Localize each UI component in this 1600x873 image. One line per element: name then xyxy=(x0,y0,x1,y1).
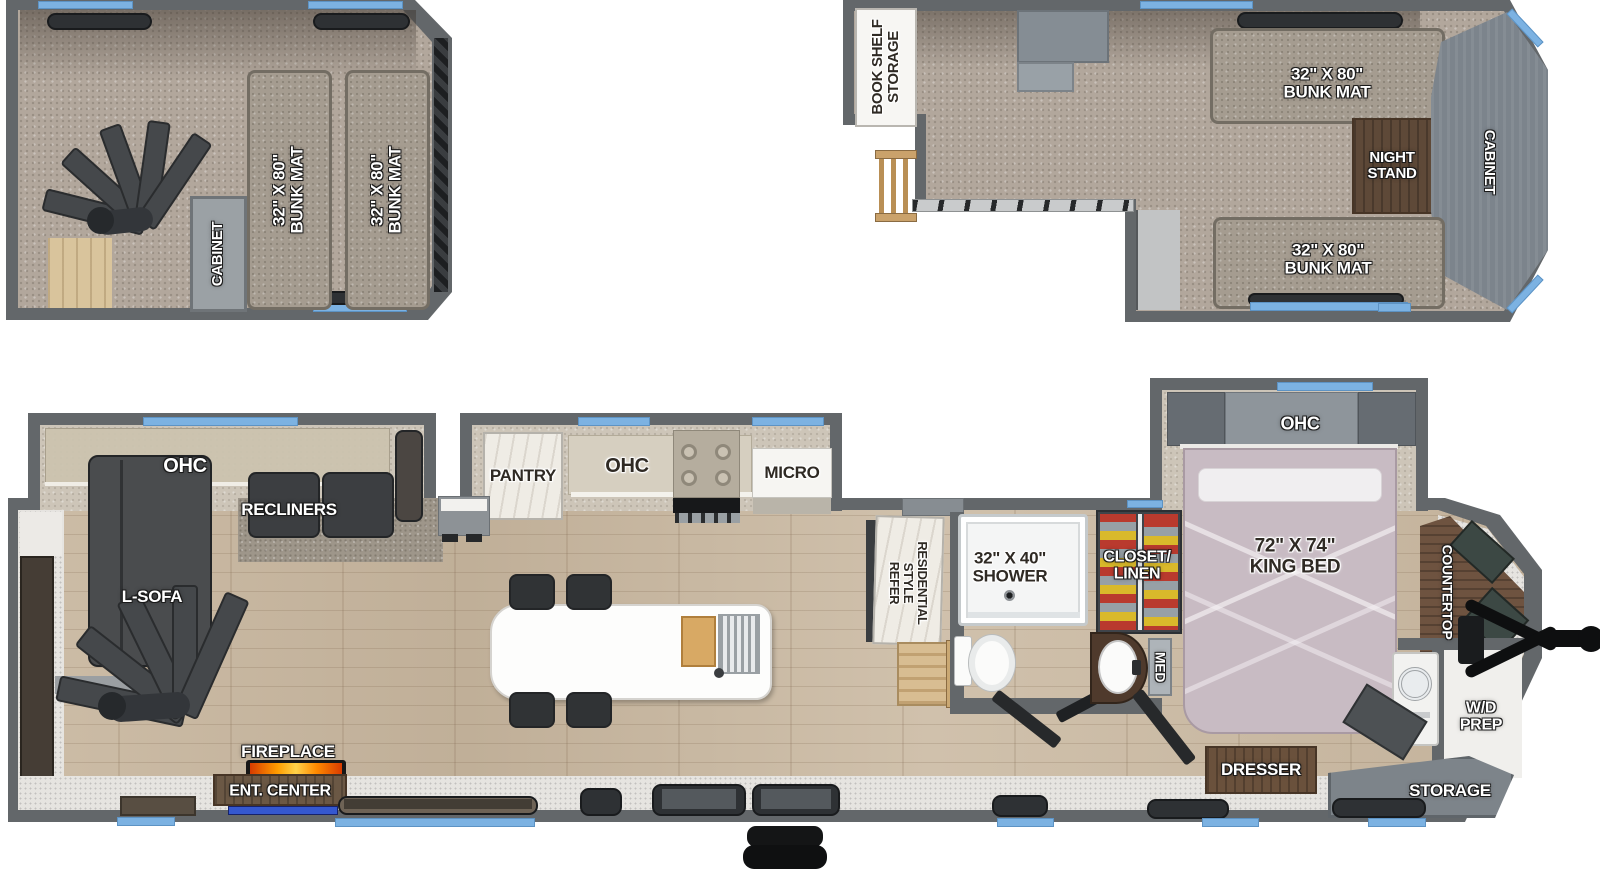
island-sink xyxy=(718,614,760,674)
loft-right-railing xyxy=(912,199,1134,212)
dresser-label: DRESSER xyxy=(1221,761,1301,779)
bottom-window-1 xyxy=(117,817,175,826)
loft-left-ladder-edge xyxy=(434,38,448,292)
sill-entry-right xyxy=(992,795,1048,817)
kitchen-slideout-window-2 xyxy=(752,417,824,426)
stove-vent xyxy=(675,513,740,523)
entry-mat-2-glass xyxy=(761,789,831,809)
living-corner-unit xyxy=(395,430,423,522)
bed-pillows xyxy=(1198,468,1382,502)
loft-left-cabinet-label: CABINET xyxy=(210,222,226,287)
l-sofa-label: L-SOFA xyxy=(122,588,183,606)
ent-center-led xyxy=(228,806,338,815)
loft-left-window-top-2 xyxy=(308,1,403,9)
island-chair-2 xyxy=(566,574,612,610)
living-slideout-window xyxy=(143,417,298,426)
kitchen-ohc-label: OHC xyxy=(605,456,649,478)
mid-cabinet-mark-2 xyxy=(466,534,482,542)
loft-right-window-top xyxy=(1140,1,1253,9)
loft-stairs-lower xyxy=(897,642,949,706)
hitch-mount xyxy=(1458,616,1484,664)
burner-3 xyxy=(681,470,697,486)
entry-step-2 xyxy=(743,845,827,869)
sill-door-left xyxy=(580,788,622,816)
fireplace-label: FIREPLACE xyxy=(241,743,335,761)
loft-left-bunk-mat-2-label: 32" X 80" BUNK MAT xyxy=(369,147,406,234)
stove xyxy=(673,430,740,498)
mid-cabinet-top xyxy=(441,499,487,511)
loft-right-bunk-mat-bottom-label: 32" X 80" BUNK MAT xyxy=(1285,242,1372,279)
closet-label: CLOSET/ LINEN xyxy=(1103,549,1170,584)
hitch-coupler xyxy=(1578,626,1600,652)
cutting-board xyxy=(681,616,716,667)
vanity-faucet xyxy=(1132,660,1141,675)
entry-mat-1-glass xyxy=(662,789,736,809)
micro-drawer xyxy=(753,498,831,514)
hull-top-window xyxy=(1127,500,1163,508)
bedroom-ohc-end-left xyxy=(1167,392,1225,446)
burner-4 xyxy=(715,470,731,486)
hearth-tray xyxy=(120,796,196,816)
floorplan: 32" X 80" BUNK MAT 32" X 80" BUNK MAT CA… xyxy=(0,0,1600,873)
bedroom-ohc-end-right xyxy=(1358,392,1416,446)
living-ohc-label: OHC xyxy=(163,456,207,478)
loft-left-overhead-shelf-2 xyxy=(313,13,410,30)
sill-bedroom-1 xyxy=(1147,799,1229,819)
ent-center-label: ENT. CENTER xyxy=(229,782,331,799)
loft-left-bunk-mat-1-label: 32" X 80" BUNK MAT xyxy=(271,147,308,234)
island-chair-4 xyxy=(566,692,612,728)
burner-1 xyxy=(681,444,697,460)
loft-left-window-top-1 xyxy=(38,1,133,9)
loft-right-overhead-box-2 xyxy=(1017,62,1074,92)
loft-left-spiral-stairs xyxy=(35,185,205,320)
king-bed-label: 72" X 74" KING BED xyxy=(1250,536,1341,577)
sofa-seam xyxy=(120,460,123,660)
rear-counter xyxy=(20,512,62,556)
bottom-window-5 xyxy=(1368,818,1426,827)
shower-glass xyxy=(968,612,1080,618)
bottom-window-2 xyxy=(335,818,535,827)
island-chair-1 xyxy=(509,574,555,610)
loft-right-bunk-mat-top-label: 32" X 80" BUNK MAT xyxy=(1284,66,1371,103)
loft-right-bunk-shelf xyxy=(1237,12,1403,29)
bedroom-slideout-window xyxy=(1277,382,1373,391)
micro-label: MICRO xyxy=(764,464,819,482)
loft-right-bookshelf-label: BOOK SHELF STORAGE xyxy=(870,19,902,114)
toilet-bowl xyxy=(968,634,1016,692)
loft-right-wall-column xyxy=(1136,210,1180,310)
loft-right-cabinet-label: CABINET xyxy=(1481,130,1497,195)
sill-bedroom-2 xyxy=(1332,798,1426,818)
loft-right-overhead-box-1 xyxy=(1017,10,1109,63)
countertop-label: COUNTERTOP xyxy=(1439,545,1454,640)
kitchen-slideout-window-1 xyxy=(578,417,650,426)
bedroom-ohc-label: OHC xyxy=(1280,414,1319,433)
storage-label: STORAGE xyxy=(1409,782,1491,800)
washer-door xyxy=(1398,667,1432,701)
mid-cabinet-mark-1 xyxy=(442,534,458,542)
oven-front xyxy=(673,498,740,513)
shower-drain xyxy=(1004,590,1015,601)
med-label: MED xyxy=(1152,652,1167,682)
wd-prep-label: W/D PREP xyxy=(1460,700,1502,735)
shower-label: 32" X 40" SHOWER xyxy=(973,550,1048,587)
entry-step-1 xyxy=(747,826,823,847)
loft-left-overhead-shelf-1 xyxy=(47,13,152,30)
island-faucet xyxy=(714,668,724,678)
recliners-label: RECLINERS xyxy=(241,501,337,519)
sill-living-glass xyxy=(344,799,532,809)
pantry-label: PANTRY xyxy=(490,467,556,485)
loft-right-window-bottom-2 xyxy=(1378,303,1411,312)
burner-2 xyxy=(715,444,731,460)
bottom-window-3 xyxy=(997,818,1054,827)
refer-label: RESIDENTIAL STYLE REFER xyxy=(887,541,929,624)
island-chair-3 xyxy=(509,692,555,728)
loft-right-night-stand-label: NIGHT STAND xyxy=(1367,150,1416,182)
bottom-window-4 xyxy=(1202,818,1259,827)
